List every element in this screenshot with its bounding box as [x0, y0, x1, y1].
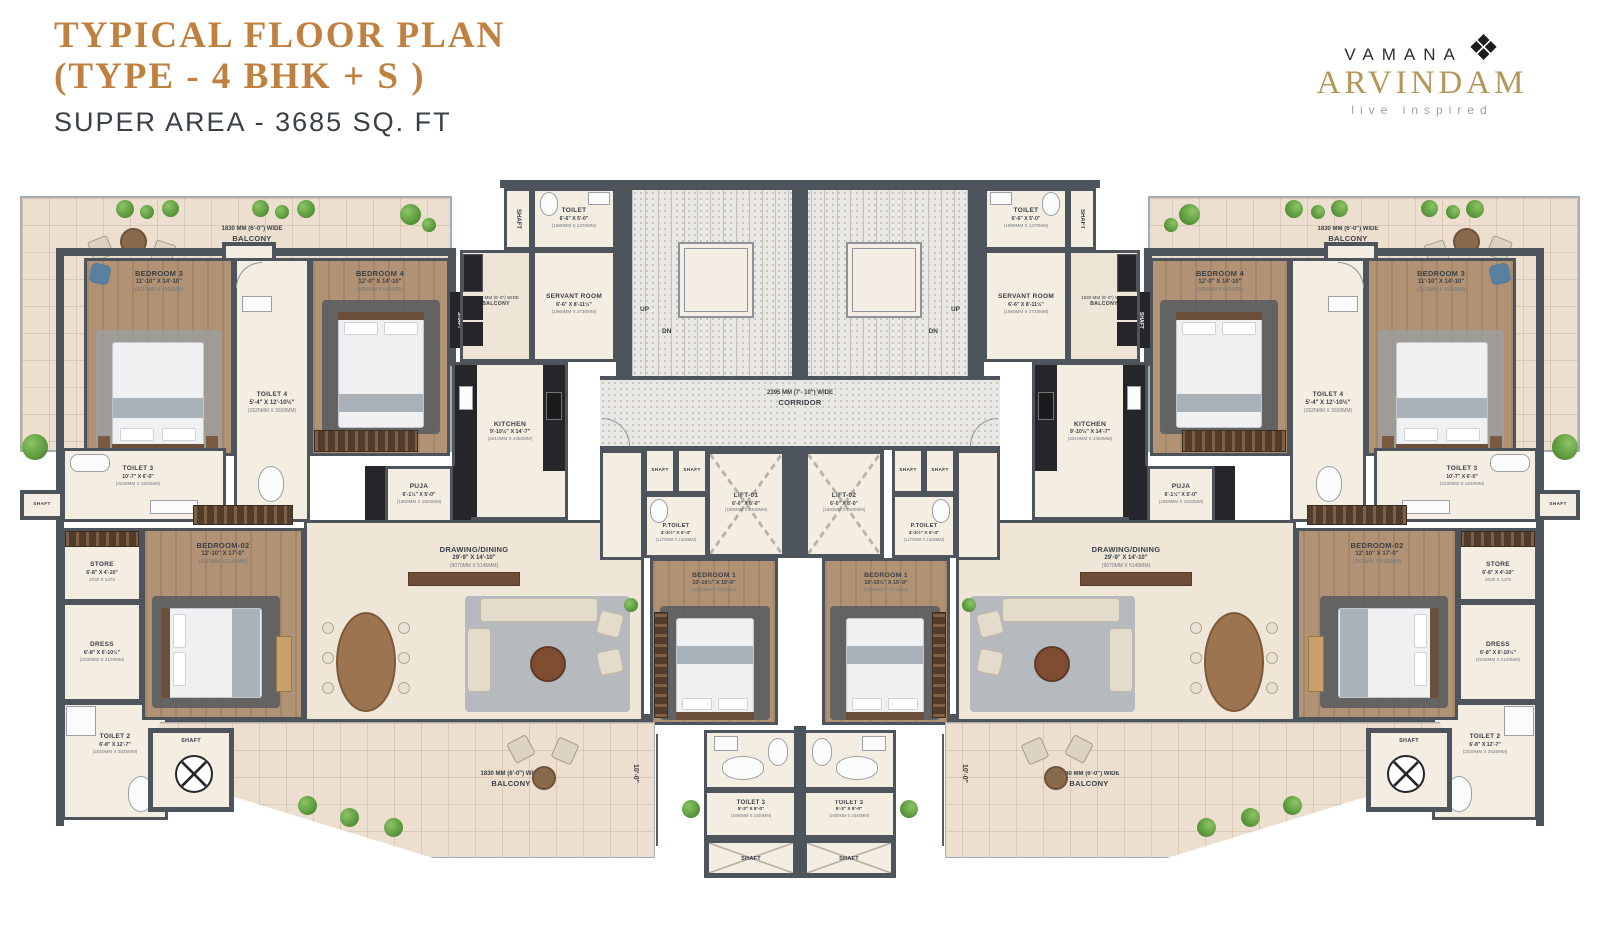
bathtub [722, 756, 764, 780]
sofa [467, 628, 491, 692]
dining-chair [1190, 652, 1202, 664]
plant-icon [1197, 818, 1216, 837]
shaft: SHAFT [802, 838, 896, 878]
pillow [682, 698, 712, 710]
wardrobe [65, 531, 139, 547]
sink [1328, 296, 1358, 312]
toilet-fixture [768, 738, 788, 766]
pillow [173, 614, 186, 648]
plant-icon [1421, 200, 1438, 217]
dining-chair [1266, 652, 1278, 664]
plant-icon [962, 598, 976, 612]
toilet-fixture [932, 499, 950, 523]
sofa [1109, 628, 1133, 692]
plant-icon [298, 796, 317, 815]
wardrobe [1307, 505, 1407, 525]
dress-label: DRESS 6'-8" X 6'-10½" (2030MM X 2100MM) [1461, 641, 1535, 662]
pillow [162, 428, 196, 441]
corridor-label: 2395 MM (7'- 10") WIDE CORRIDOR [710, 390, 890, 408]
pillow [1222, 322, 1256, 335]
pillow [1404, 428, 1438, 441]
lift-01: LIFT-01 6'-0" X 8'-0" (1800MM X 2400MM) [706, 450, 786, 558]
wall [794, 726, 806, 878]
bed-throw [339, 394, 423, 412]
utility-unit [463, 254, 483, 292]
dimension-line [656, 734, 658, 846]
stove [1038, 392, 1054, 420]
pillow [1414, 652, 1427, 686]
dimension-label: 10'-0" [632, 764, 639, 783]
dress-room: DRESS 6'-8" X 6'-10½" (2030MM X 2100MM) [1458, 602, 1538, 702]
floor-plan: 1830 MM (6'-0") WIDE BALCONY [0, 0, 1600, 931]
dining-table [1204, 612, 1264, 712]
plant-icon [1179, 204, 1200, 225]
drawing-dining-label: DRAWING/DINING 29'-9" X 14'-10" (9070MM … [307, 545, 641, 569]
bench [1308, 636, 1324, 692]
sink [990, 192, 1012, 205]
bench [276, 636, 292, 692]
dining-table [336, 612, 396, 712]
washer [463, 296, 483, 320]
toilet-3-bottom: TOILET 3 5'-3" X 8'-0" (1600MM X 2440MM) [802, 790, 896, 838]
washer [1117, 296, 1137, 320]
shaft: SHAFT [892, 448, 924, 494]
dress-label: DRESS 6'-8" X 6'-10½" (2030MM X 2100MM) [65, 641, 139, 662]
toilet-4-label: TOILET 4 5'-4" X 12'-10½" (1625MM X 3920… [237, 391, 307, 414]
sofa [1002, 598, 1120, 622]
bedroom-02-label: BEDROOM-02 12'-10" X 17'-0" (3910MM X 51… [145, 541, 301, 565]
shaft: SHAFT [20, 490, 64, 520]
plant-icon [1331, 200, 1348, 217]
dining-chair [322, 622, 334, 634]
bathtub [1490, 454, 1530, 472]
bed-throw [232, 609, 260, 697]
dining-chair [398, 682, 410, 694]
p-toilet-label: P.TOILET 4'-2½" X 5'-4" (1270MM X 1625MM… [895, 523, 953, 542]
bathtub [836, 756, 878, 780]
store-label: STORE 6'-8" X 4'-10" 2030 X 1470 [65, 561, 139, 582]
staircase: UP DN [628, 186, 796, 380]
shaft: SHAFT [1068, 188, 1096, 250]
bedroom-4-label: BEDROOM 4 12'-0" X 14'-10" (3658MM X 452… [313, 269, 447, 293]
armchair [976, 648, 1004, 676]
pillow [852, 698, 882, 710]
bed-throw [677, 646, 753, 664]
sink [714, 736, 738, 751]
wall [972, 186, 984, 378]
lift-02-label: LIFT-02 6'-0" X 8'-0" (1800MM X 2400MM) [808, 492, 880, 513]
fan-icon [1387, 755, 1425, 793]
console-table [408, 572, 520, 586]
shaft: SHAFT [676, 448, 708, 494]
pillow [1182, 322, 1216, 335]
toilet-fixture [650, 499, 668, 523]
bathtub [70, 454, 110, 472]
plant-icon [422, 218, 436, 232]
vanity [1402, 500, 1450, 514]
fan-cross [1389, 757, 1423, 791]
stair-landing [846, 242, 922, 318]
lift-02: LIFT-02 6'-0" X 8'-0" (1800MM X 2400MM) [804, 450, 884, 558]
dining-chair [398, 652, 410, 664]
store-label: STORE 6'-8" X 4'-10" 2030 X 1470 [1461, 561, 1535, 582]
plant-icon [682, 800, 700, 818]
fan-cross [177, 757, 211, 791]
plant-icon [340, 808, 359, 827]
shaft: SHAFT [504, 188, 532, 250]
dining-chair [322, 682, 334, 694]
sink [588, 192, 610, 205]
sink [242, 296, 272, 312]
wing: 1830 MM (6'-0") WIDE BALCONY [0, 0, 800, 931]
bedroom-4-label: BEDROOM 4 12'-0" X 14'-10" (3658MM X 452… [1153, 269, 1287, 293]
wing: 1830 MM (6'-0") WIDE BALCONY [800, 0, 1600, 931]
headboard [338, 312, 424, 320]
headboard [1176, 312, 1262, 320]
servant-room-label: SERVANT ROOM 6'-6" X 8'-11½" (1980MM X 2… [987, 293, 1065, 314]
shaft-fan: SHAFT [1366, 728, 1452, 812]
shaft-fan: SHAFT [148, 728, 234, 812]
drawing-dining-label: DRAWING/DINING 29'-9" X 14'-10" (9070MM … [959, 545, 1293, 569]
foyer [956, 450, 1000, 560]
wardrobe [1182, 430, 1286, 452]
bedroom-02-label: BEDROOM-02 12'-10" X 17'-0" (3910MM X 51… [1299, 541, 1455, 565]
bed-throw [1340, 609, 1368, 697]
balcony-bottom-label: 1830 MM (6'-0") WIDE BALCONY [401, 771, 621, 789]
plant-icon [1285, 200, 1303, 218]
vanity [150, 500, 198, 514]
plant-icon [900, 800, 918, 818]
bedroom-1-label: BEDROOM 1 10'-10½" X 15'-0" (3330MM X 45… [825, 571, 947, 593]
shower [66, 706, 96, 736]
puja-label: PUJA 6'-1½" X 5'-0" (1860MM X 1520MM) [1150, 483, 1212, 504]
dining-chair [1266, 622, 1278, 634]
coffee-table [530, 646, 566, 682]
bedroom-1-label: BEDROOM 1 10'-10½" X 15'-0" (3330MM X 45… [653, 571, 775, 593]
shaft: SHAFT [704, 838, 798, 878]
sofa [480, 598, 598, 622]
floor-plan-page: TYPICAL FLOOR PLAN (TYPE - 4 BHK + S ) S… [0, 0, 1600, 931]
pillow [888, 698, 918, 710]
accent-chair [88, 262, 112, 286]
toilet-fixture [812, 738, 832, 766]
pillow [384, 322, 418, 335]
plant-icon [1311, 205, 1325, 219]
plant-icon [384, 818, 403, 837]
toilet-3-bottom: TOILET 3 5'-3" X 8'-0" (1600MM X 2440MM) [704, 790, 798, 838]
staircase: UP DN [804, 186, 972, 380]
pillow [120, 428, 154, 441]
bed-throw [113, 398, 203, 418]
utility-unit [1117, 254, 1137, 292]
plant-icon [275, 205, 289, 219]
puja-label: PUJA 6'-1½" X 5'-0" (1860MM X 1520MM) [388, 483, 450, 504]
dimension-label: 10'-0" [961, 764, 968, 783]
coffee-table [1034, 646, 1070, 682]
wardrobe [654, 612, 668, 718]
plant-icon [1283, 796, 1302, 815]
balcony-bottom-label: 1830 MM (6'-0") WIDE BALCONY [979, 771, 1199, 789]
dress-room: DRESS 6'-8" X 6'-10½" (2030MM X 2100MM) [62, 602, 142, 702]
pillow [1446, 428, 1480, 441]
dining-chair [1190, 682, 1202, 694]
wall [616, 186, 628, 378]
wardrobe [1461, 531, 1535, 547]
plant-icon [297, 200, 315, 218]
kitchen-sink [1127, 386, 1141, 410]
toilet-fixture [258, 466, 284, 502]
toilet-fixture [1316, 466, 1342, 502]
toilet-fixture [540, 192, 558, 216]
shaft: SHAFT [924, 448, 956, 494]
bed-throw [1397, 398, 1487, 418]
headboard [676, 712, 754, 720]
servant-room: SERVANT ROOM 6'-6" X 8'-11½" (1980MM X 2… [532, 250, 616, 362]
kitchen-label: KITCHEN 9'-10½" X 14'-7" (3010MM X 4450M… [473, 420, 547, 442]
pillow [1414, 614, 1427, 648]
corridor [600, 376, 800, 450]
dining-chair [398, 622, 410, 634]
kitchen-label: KITCHEN 9'-10½" X 14'-7" (3010MM X 4450M… [1053, 420, 1127, 442]
headboard [162, 608, 170, 698]
shaft: SHAFT [1536, 490, 1580, 520]
pillow [344, 322, 378, 335]
shaft: SHAFT [644, 448, 676, 494]
stair-landing [678, 242, 754, 318]
plant-icon [22, 434, 48, 460]
patio-table [532, 766, 556, 790]
servant-room: SERVANT ROOM 6'-6" X 8'-11½" (1980MM X 2… [984, 250, 1068, 362]
headboard [846, 712, 924, 720]
washer [463, 322, 483, 346]
plant-icon [116, 200, 134, 218]
headboard [1430, 608, 1438, 698]
armchair [596, 648, 624, 676]
accent-chair [1488, 262, 1512, 286]
wardrobe [314, 430, 418, 452]
foyer [600, 450, 644, 560]
bed-throw [847, 646, 923, 664]
shower [1504, 706, 1534, 736]
dining-chair [1266, 682, 1278, 694]
fan-icon [175, 755, 213, 793]
plant-icon [624, 598, 638, 612]
plant-icon [162, 200, 179, 217]
pillow [173, 652, 186, 686]
console-table [1080, 572, 1192, 586]
dimension-line [942, 734, 944, 846]
toilet-4-label: TOILET 4 5'-4" X 12'-10½" (1625MM X 3920… [1293, 391, 1363, 414]
toilet-3-bottom-label: TOILET 3 5'-3" X 8'-0" (1600MM X 2440MM) [707, 799, 795, 819]
bed-throw [1177, 394, 1261, 412]
plant-icon [1446, 205, 1460, 219]
pillow [718, 698, 748, 710]
plant-icon [252, 200, 269, 217]
wardrobe [932, 612, 946, 718]
plant-icon [140, 205, 154, 219]
toilet-fixture [1042, 192, 1060, 216]
plant-icon [1164, 218, 1178, 232]
kitchen-sink [459, 386, 473, 410]
washer [1117, 322, 1137, 346]
plant-icon [400, 204, 421, 225]
p-toilet-label: P.TOILET 4'-2½" X 5'-4" (1270MM X 1625MM… [647, 523, 705, 542]
toilet-3-bottom-label: TOILET 3 5'-3" X 8'-0" (1600MM X 2440MM) [805, 799, 893, 819]
servant-room-label: SERVANT ROOM 6'-6" X 8'-11½" (1980MM X 2… [535, 293, 613, 314]
stove [546, 392, 562, 420]
patio-table [1044, 766, 1068, 790]
plant-icon [1241, 808, 1260, 827]
dining-chair [1190, 622, 1202, 634]
wall [786, 450, 804, 558]
wardrobe [193, 505, 293, 525]
lift-01-label: LIFT-01 6'-0" X 8'-0" (1800MM X 2400MM) [710, 492, 782, 513]
plant-icon [1466, 200, 1484, 218]
dining-chair [322, 652, 334, 664]
plant-icon [1552, 434, 1578, 460]
sink [862, 736, 886, 751]
